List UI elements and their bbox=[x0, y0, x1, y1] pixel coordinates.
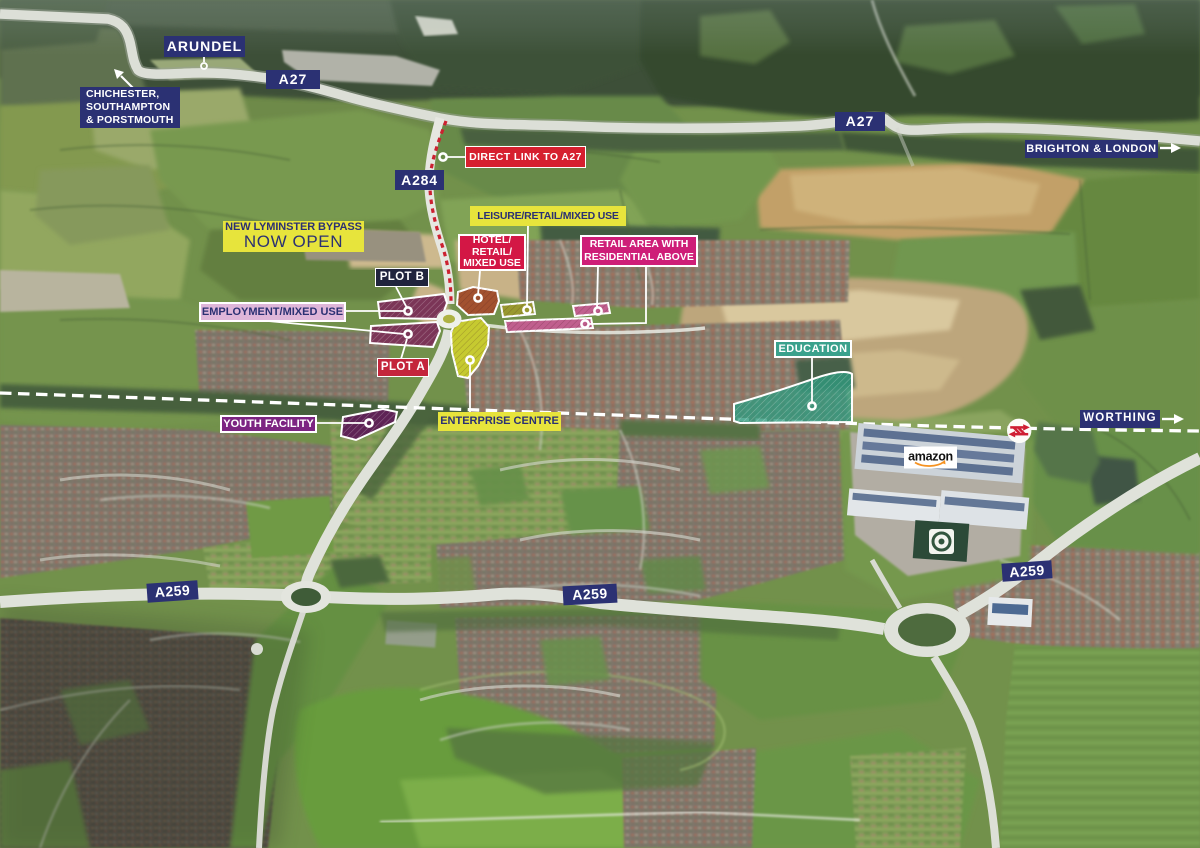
svg-text:amazon: amazon bbox=[908, 450, 953, 464]
